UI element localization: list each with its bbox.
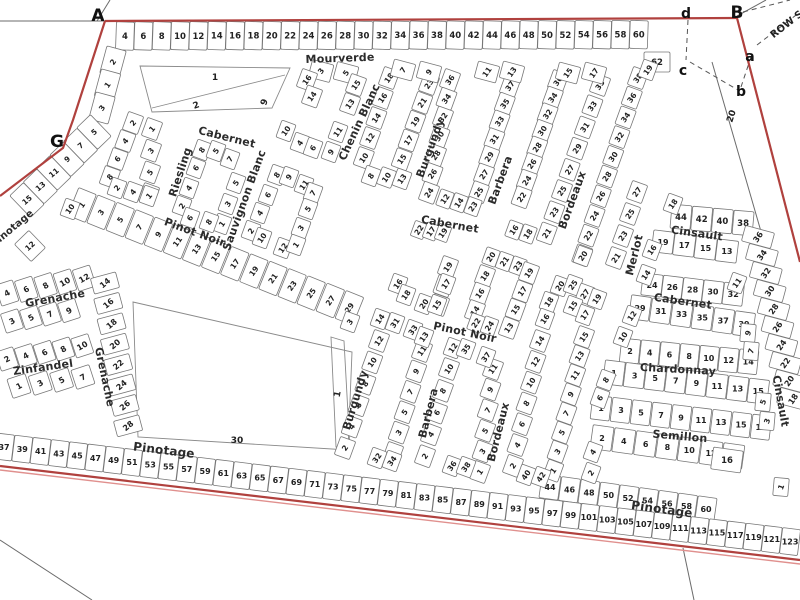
lot-number: 69 (291, 478, 303, 487)
lot-number: 38 (431, 31, 443, 41)
lot-number: 13 (715, 418, 726, 427)
lot-number: 9 (678, 413, 684, 422)
corner-letter: a (745, 49, 754, 65)
lot-number: 26 (321, 31, 333, 41)
lot-number: 6 (643, 440, 649, 449)
lot-number: 123 (782, 537, 799, 546)
lot-number: 111 (672, 524, 689, 533)
lot-number: 60 (700, 505, 712, 514)
lot-number: 7 (673, 377, 679, 386)
lot-number: 53 (145, 460, 156, 469)
lot-number: 77 (364, 487, 375, 496)
lot-number: 3 (618, 406, 624, 415)
lot-number: 37 (718, 317, 729, 326)
lot-number: 117 (727, 531, 744, 540)
lot-number: 51 (126, 458, 138, 467)
lot-number: 30 (231, 436, 244, 446)
lot-number: 35 (697, 313, 709, 322)
lot-number: 6 (667, 350, 673, 359)
lot-number: 14 (211, 32, 223, 42)
lot-number: 10 (703, 354, 715, 363)
lot-number: 10 (684, 446, 696, 455)
lot-number: 32 (376, 31, 388, 41)
lot-number: 58 (615, 31, 627, 41)
lot-number: 85 (437, 496, 449, 505)
lot-number: 8 (665, 443, 671, 452)
lot-number: 8 (686, 352, 692, 361)
lot-number: 11 (711, 382, 723, 391)
lot-number: 107 (635, 520, 652, 529)
lot-number: 46 (564, 486, 576, 495)
lot-number: 33 (676, 310, 687, 319)
lot-number: 24 (303, 31, 315, 41)
lot-number: 54 (578, 31, 590, 41)
lot-number: 5 (652, 374, 658, 383)
lot-number: 75 (346, 485, 358, 494)
lot-number: 26 (667, 283, 679, 292)
lot-number: 49 (108, 456, 120, 465)
lot-number: 40 (449, 31, 461, 41)
lot-number: 48 (583, 488, 595, 497)
lot-number: 46 (504, 31, 516, 41)
lot-number: 81 (401, 491, 413, 500)
lot-number: 50 (541, 31, 553, 41)
lot-number: 43 (53, 449, 64, 458)
lot-number: 15 (735, 421, 747, 430)
lot-number: 97 (547, 509, 558, 518)
lot-number: 44 (486, 31, 498, 41)
corner-letter: G (50, 132, 64, 152)
lot-number: 40 (716, 217, 728, 227)
lot-number: 87 (455, 498, 466, 507)
lot-number: 5 (638, 409, 644, 418)
lot-number: 83 (419, 493, 430, 502)
lot-number: 31 (655, 307, 667, 316)
lot-number: 63 (236, 471, 247, 480)
lot-number: 73 (327, 482, 338, 491)
lot-number: 28 (687, 285, 699, 294)
lot-number: 113 (690, 526, 707, 535)
lot-number: 4 (647, 349, 653, 358)
corner-letter: B (731, 3, 744, 23)
lot-number: 36 (413, 31, 425, 41)
lot-number: 4 (621, 437, 627, 446)
lot-number: 121 (763, 535, 780, 544)
lot-number: 59 (200, 467, 212, 476)
lot-number: 52 (559, 31, 571, 41)
street-label: Mourverde (305, 51, 374, 66)
lot-number: 71 (309, 480, 321, 489)
lot-number: 48 (523, 31, 535, 41)
lot-number: 12 (723, 356, 734, 365)
lot-number: 79 (382, 489, 394, 498)
lot-number: 115 (709, 529, 726, 538)
lot-number: 28 (339, 31, 351, 41)
lot-number: 16 (229, 32, 241, 42)
lot-number: 55 (163, 463, 175, 472)
lot-number: 57 (181, 465, 192, 474)
lot-number: 95 (529, 507, 541, 516)
lot-number: 101 (581, 513, 598, 522)
lot-number: 99 (565, 511, 577, 520)
lot-number: 7 (658, 411, 664, 420)
lot-number: 2 (599, 434, 605, 443)
lot-number: 56 (596, 31, 608, 41)
lot-number: 60 (633, 31, 645, 41)
corner-letter: d (681, 6, 691, 22)
lot-number: 67 (273, 476, 284, 485)
lot-number: 39 (17, 445, 29, 454)
lot-number: 61 (218, 469, 230, 478)
lot-number: 93 (510, 504, 521, 513)
lot-number: 13 (721, 247, 732, 256)
lot-number: 37 (0, 443, 10, 452)
lot-number: 65 (254, 474, 266, 483)
lot-number: 50 (603, 491, 615, 500)
lot-number: 2 (627, 347, 633, 356)
lot-number: 45 (72, 452, 84, 461)
lot-number: 42 (468, 31, 480, 41)
lot-number: 8 (159, 32, 165, 42)
lot-number: 9 (694, 379, 700, 388)
lot-number: 16 (721, 456, 733, 466)
lot-number: 109 (654, 522, 671, 531)
lot-number: 103 (599, 515, 616, 524)
lot-number: 6 (140, 32, 146, 42)
lot-number: 18 (248, 32, 260, 42)
lot-number: 42 (696, 215, 708, 225)
lot-number: 20 (266, 32, 278, 42)
lot-number: 1 (212, 73, 218, 83)
lot-number: 3 (632, 371, 638, 380)
lot-number: 22 (284, 32, 296, 42)
lot-number: 10 (174, 32, 186, 42)
lot-number: 12 (192, 32, 204, 42)
lot-number: 13 (732, 384, 743, 393)
plat-map-canvas: 4681012141618202224262830323436384042444… (0, 0, 800, 600)
lot-number: 89 (474, 500, 486, 509)
lot-number: 15 (700, 244, 712, 253)
lot-number: 47 (90, 454, 101, 463)
lot-number: 41 (35, 447, 47, 456)
lot-number: 91 (492, 502, 504, 511)
lot-number: 11 (695, 416, 707, 425)
corner-letter: b (736, 84, 746, 100)
lot-number: 17 (679, 241, 690, 250)
lot-number: 105 (617, 518, 634, 527)
lot-number: 4 (122, 32, 128, 42)
lot-number: 34 (394, 31, 406, 41)
corner-letter: c (679, 63, 687, 79)
vineyard-plat-map: 4681012141618202224262830323436384042444… (0, 0, 800, 600)
lot-number: 30 (707, 288, 719, 297)
lot-number: 30 (358, 31, 370, 41)
corner-letter: A (91, 6, 105, 26)
lot-number: 119 (745, 533, 762, 542)
